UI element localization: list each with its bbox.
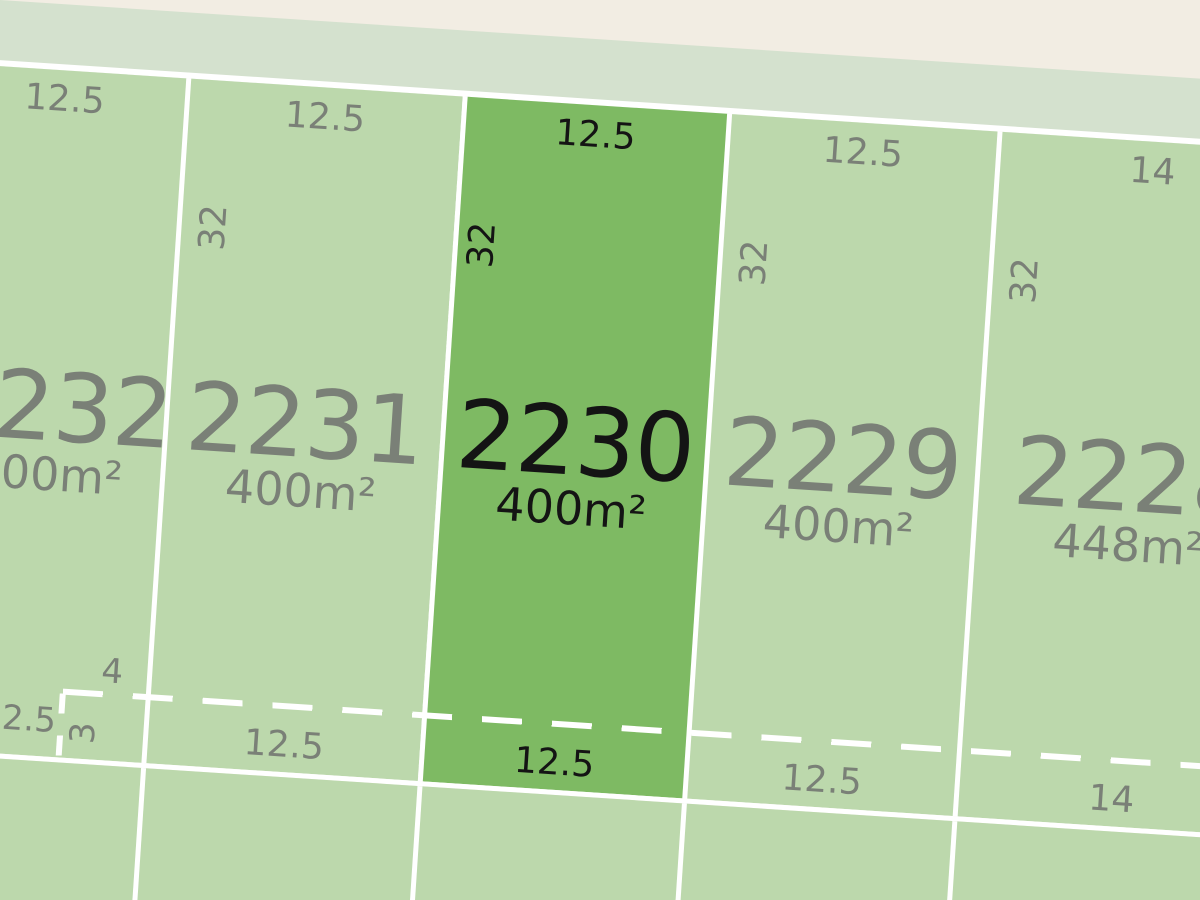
lot-area-label: 448m² — [1051, 513, 1200, 577]
lot-side-dimension: 32 — [732, 239, 776, 287]
lot-area-label: 400m² — [761, 494, 915, 558]
rear-lot-boundary — [914, 821, 957, 900]
lot-front-dimension: 12.5 — [284, 94, 367, 140]
lot-front-dimension: 12.5 — [23, 76, 106, 122]
lot-map-canvas: 12.5 2232 400m² 12.5 32 2231 400m² 12.5 … — [0, 0, 1200, 900]
lot-front-dimension: 14 — [1128, 150, 1176, 194]
lot-front-dimension: 12.5 — [554, 112, 637, 158]
lot-area-label: 400m² — [0, 442, 124, 506]
lot-area-label: 400m² — [494, 477, 648, 541]
lot-side-dimension: 32 — [192, 203, 236, 251]
rear-lot-boundary — [379, 786, 422, 900]
lot-polygon[interactable]: 14 32 2228 448m² 14 — [958, 132, 1200, 838]
lot-front-dimension: 12.5 — [822, 130, 905, 176]
rear-lot-boundary — [103, 768, 146, 900]
lot-area-label: 400m² — [223, 459, 377, 523]
subdivision-plan: 12.5 2232 400m² 12.5 32 2231 400m² 12.5 … — [0, 0, 1200, 900]
lot-polygon[interactable]: 12.5 32 2229 400m² 12.5 — [687, 114, 997, 816]
setback-dimension-corner: 2.5 — [1, 698, 58, 741]
lot-rear-dimension: 12.5 — [243, 722, 326, 768]
lot-polygon-selected[interactable]: 12.5 32 2230 400m² 12.5 — [423, 97, 727, 799]
lot-polygon[interactable]: 12.5 32 2231 400m² 12.5 — [146, 79, 462, 781]
lot-rear-dimension: 12.5 — [780, 757, 863, 803]
rear-lot-boundary — [644, 803, 687, 900]
lot-rear-dimension: 12.5 — [513, 740, 596, 786]
lot-side-dimension: 32 — [460, 221, 504, 269]
lot-rear-dimension: 14 — [1087, 777, 1135, 821]
setback-dimension-top: 4 — [100, 651, 124, 692]
front-lots-row: 12.5 2232 400m² 12.5 32 2231 400m² 12.5 … — [0, 57, 1200, 838]
lot-side-dimension: 32 — [1003, 256, 1047, 304]
setback-dimension-side: 3 — [63, 721, 104, 745]
